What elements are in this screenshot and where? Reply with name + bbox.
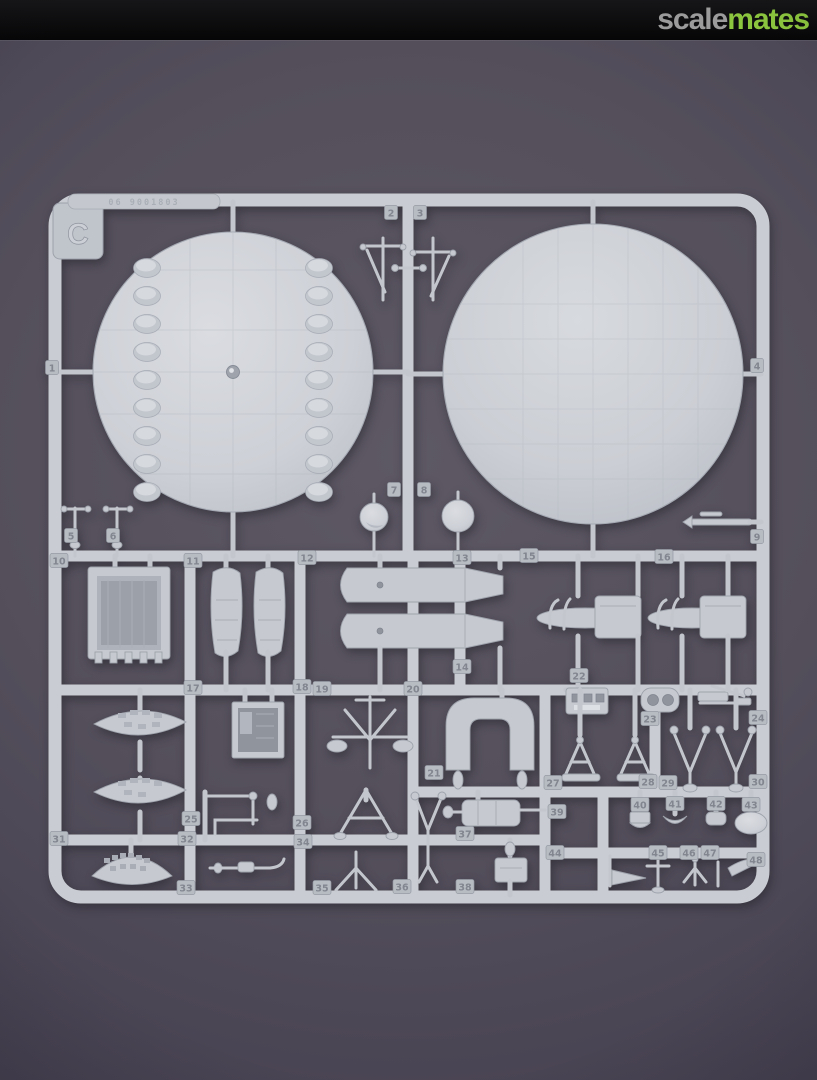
- part-number-tag: 43: [742, 798, 760, 812]
- svg-text:7: 7: [391, 486, 398, 497]
- svg-text:36: 36: [395, 883, 409, 894]
- svg-text:42: 42: [709, 800, 722, 811]
- svg-text:10: 10: [52, 557, 66, 568]
- svg-text:37: 37: [458, 830, 471, 841]
- part-number-tag: 33: [177, 881, 195, 895]
- svg-text:9: 9: [754, 533, 761, 544]
- svg-text:28: 28: [641, 778, 655, 789]
- svg-text:1: 1: [49, 364, 56, 375]
- sprue-letter: C: [67, 218, 89, 251]
- cockpit-tub-part: [88, 556, 170, 663]
- svg-text:44: 44: [548, 849, 562, 860]
- svg-text:23: 23: [643, 715, 656, 726]
- u-coaming-part: [446, 690, 534, 789]
- svg-text:18: 18: [295, 683, 309, 694]
- part-number-tag: 16: [655, 550, 673, 564]
- svg-text:12: 12: [300, 554, 313, 565]
- part-number-tag: 7: [388, 483, 401, 497]
- svg-text:38: 38: [458, 883, 472, 894]
- svg-text:47: 47: [703, 849, 716, 860]
- svg-text:32: 32: [180, 835, 193, 846]
- svg-text:3: 3: [417, 209, 424, 220]
- small-dome-parts: [360, 492, 474, 556]
- antenna-assembly-part: [327, 697, 413, 768]
- svg-text:2: 2: [388, 209, 395, 220]
- part-number-tag: 21: [425, 766, 443, 780]
- part-number-tag: 23: [641, 712, 659, 726]
- part-number-tag: 11: [184, 554, 202, 568]
- svg-text:46: 46: [682, 849, 696, 860]
- part-number-tag: 19: [313, 682, 331, 696]
- part-number-tag: 39: [548, 805, 566, 819]
- part-number-tag: 13: [453, 551, 471, 565]
- sprue-photo: scalemates: [0, 0, 817, 1080]
- rotodome-half-riveted: [93, 232, 373, 512]
- part-number-tag: 32: [178, 832, 196, 846]
- svg-text:31: 31: [52, 835, 65, 846]
- seat-console-parts: [537, 556, 746, 690]
- bent-tube-parts: [205, 792, 277, 840]
- instrument-shroud-part: [92, 840, 376, 890]
- nacelle-panel-parts: [341, 556, 504, 690]
- part-number-tag: 40: [631, 798, 649, 812]
- bottom-strut-parts: [610, 856, 762, 893]
- svg-text:17: 17: [186, 684, 199, 695]
- svg-text:22: 22: [572, 672, 585, 683]
- svg-text:24: 24: [751, 714, 765, 725]
- part-number-tag: 29: [659, 776, 677, 790]
- part-number-tag: 36: [393, 880, 411, 894]
- svg-text:11: 11: [186, 557, 199, 568]
- part-number-tag: 38: [456, 880, 474, 894]
- svg-text:27: 27: [546, 779, 559, 790]
- model-kit-sprue: C 06 9001803: [0, 0, 817, 1080]
- part-number-tag: 31: [50, 832, 68, 846]
- svg-text:20: 20: [406, 685, 420, 696]
- svg-text:19: 19: [315, 685, 328, 696]
- part-number-tag: 25: [182, 812, 200, 826]
- part-number-tag: 24: [749, 711, 767, 725]
- svg-text:25: 25: [184, 815, 197, 826]
- part-number-tag: 44: [546, 846, 564, 860]
- svg-text:29: 29: [661, 779, 674, 790]
- small-box-part: [495, 840, 527, 895]
- part-number-tag: 30: [749, 775, 767, 789]
- part-number-tag: 2: [385, 206, 398, 220]
- part-number-tag: 45: [649, 846, 667, 860]
- part-number-tag: 4: [751, 359, 764, 373]
- svg-text:13: 13: [455, 554, 468, 565]
- part-number-tag: 14: [453, 660, 471, 674]
- part-number-tag: 42: [707, 797, 725, 811]
- svg-text:4: 4: [754, 362, 761, 373]
- svg-text:6: 6: [110, 532, 117, 543]
- instrument-panel-part: [566, 688, 608, 714]
- part-number-tag: 26: [293, 816, 311, 830]
- svg-text:21: 21: [427, 769, 440, 780]
- svg-text:48: 48: [749, 856, 763, 867]
- part-number-tag: 22: [570, 669, 588, 683]
- cockpit-deck-parts: [94, 690, 186, 840]
- svg-text:35: 35: [315, 884, 328, 895]
- part-number-tag: 35: [313, 881, 331, 895]
- part-number-tag: 37: [456, 827, 474, 841]
- part-number-tag: 18: [293, 680, 311, 694]
- svg-text:8: 8: [421, 486, 428, 497]
- interior-tub-part: [232, 690, 284, 758]
- part-number-tag: 6: [107, 529, 120, 543]
- part-number-tag: 46: [680, 846, 698, 860]
- part-number-tag: 20: [404, 682, 422, 696]
- part-number-tag: 41: [666, 797, 684, 811]
- probe-rod-part: [683, 512, 761, 528]
- svg-text:34: 34: [296, 838, 310, 849]
- svg-text:15: 15: [522, 552, 535, 563]
- sprue-code-plate: 06 9001803: [68, 194, 220, 209]
- sprue-letter-tab: C: [53, 203, 103, 259]
- part-number-tag: 48: [747, 853, 765, 867]
- part-number-tag: 27: [544, 776, 562, 790]
- part-number-tag: 12: [298, 551, 316, 565]
- part-number-tag: 47: [701, 846, 719, 860]
- svg-text:14: 14: [455, 663, 469, 674]
- svg-text:5: 5: [68, 532, 75, 543]
- part-number-tag: 5: [65, 529, 78, 543]
- part-number-tag: 15: [520, 549, 538, 563]
- part-number-tag: 3: [414, 206, 427, 220]
- part-number-tag: 8: [418, 483, 431, 497]
- svg-text:45: 45: [651, 849, 664, 860]
- part-number-tag: 9: [751, 530, 764, 544]
- svg-text:33: 33: [179, 884, 192, 895]
- part-number-tag: 10: [50, 554, 68, 568]
- part-number-tag: 17: [184, 681, 202, 695]
- sprue-embossed-code: 06 9001803: [108, 198, 179, 208]
- svg-text:30: 30: [751, 778, 765, 789]
- svg-text:39: 39: [550, 808, 563, 819]
- svg-text:43: 43: [744, 801, 757, 812]
- svg-text:16: 16: [657, 553, 671, 564]
- trestle-part: [334, 790, 398, 840]
- fuselage-half-parts: [211, 556, 285, 690]
- part-number-tag: 34: [294, 835, 312, 849]
- svg-text:41: 41: [668, 800, 681, 811]
- svg-text:26: 26: [295, 819, 309, 830]
- part-number-tag: 1: [46, 361, 59, 375]
- part-number-tag: 28: [639, 775, 657, 789]
- svg-text:40: 40: [633, 801, 647, 812]
